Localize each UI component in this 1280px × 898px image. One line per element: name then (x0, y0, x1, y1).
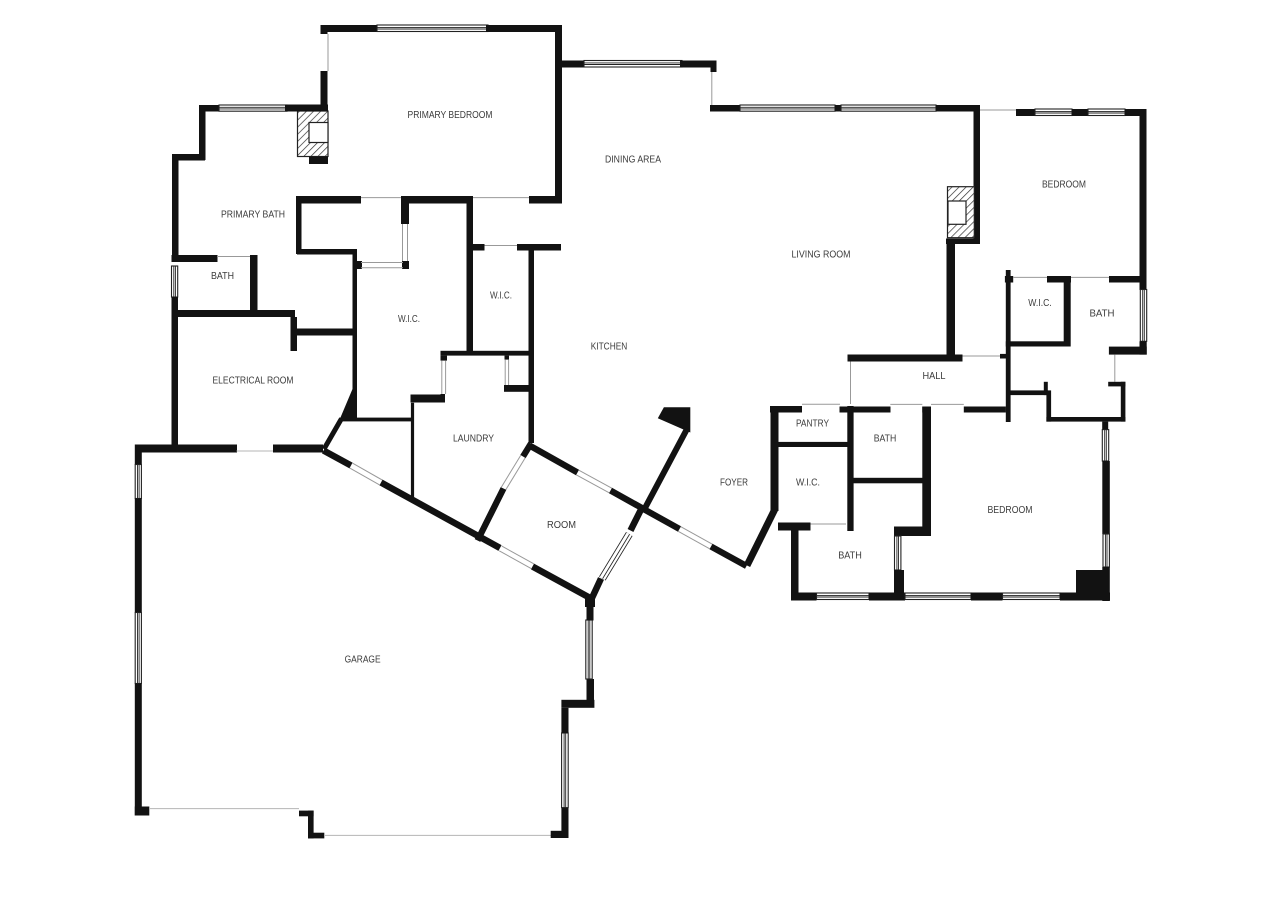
svg-text:W.I.C.: W.I.C. (398, 314, 420, 325)
svg-text:ROOM: ROOM (547, 520, 576, 531)
svg-text:PANTRY: PANTRY (796, 419, 829, 430)
svg-text:DINING AREA: DINING AREA (605, 155, 661, 166)
svg-text:GARAGE: GARAGE (345, 655, 381, 666)
svg-text:LAUNDRY: LAUNDRY (453, 434, 494, 445)
svg-text:W.I.C.: W.I.C. (796, 478, 820, 489)
svg-text:BATH: BATH (1090, 309, 1115, 320)
svg-text:ELECTRICAL ROOM: ELECTRICAL ROOM (213, 376, 294, 387)
svg-text:BATH: BATH (838, 551, 862, 562)
svg-text:PRIMARY BATH: PRIMARY BATH (221, 210, 285, 221)
svg-text:PRIMARY BEDROOM: PRIMARY BEDROOM (408, 110, 493, 121)
svg-text:FOYER: FOYER (720, 478, 748, 489)
svg-text:HALL: HALL (923, 371, 946, 382)
svg-text:W.I.C.: W.I.C. (1028, 298, 1051, 309)
svg-text:BEDROOM: BEDROOM (988, 505, 1033, 516)
svg-text:KITCHEN: KITCHEN (591, 342, 628, 353)
svg-text:BATH: BATH (874, 434, 897, 445)
svg-text:BATH: BATH (211, 271, 234, 282)
svg-text:BEDROOM: BEDROOM (1042, 180, 1086, 191)
svg-text:W.I.C.: W.I.C. (490, 291, 512, 302)
svg-text:LIVING ROOM: LIVING ROOM (792, 250, 851, 261)
